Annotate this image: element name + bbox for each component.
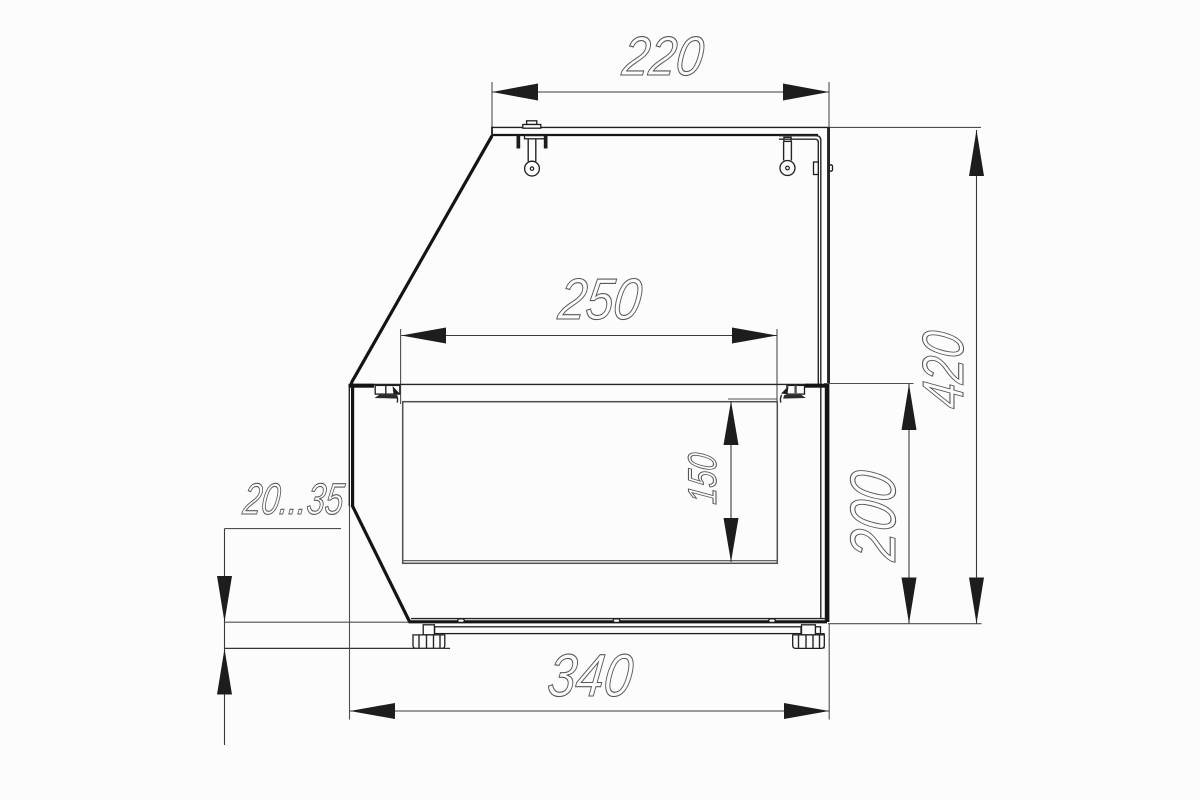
svg-text:420: 420 bbox=[911, 328, 976, 412]
svg-text:20...35: 20...35 bbox=[240, 475, 347, 524]
svg-text:250: 250 bbox=[555, 267, 646, 332]
svg-text:200: 200 bbox=[837, 467, 909, 565]
svg-text:150: 150 bbox=[681, 451, 725, 506]
svg-text:220: 220 bbox=[619, 25, 708, 87]
svg-text:340: 340 bbox=[544, 642, 636, 709]
